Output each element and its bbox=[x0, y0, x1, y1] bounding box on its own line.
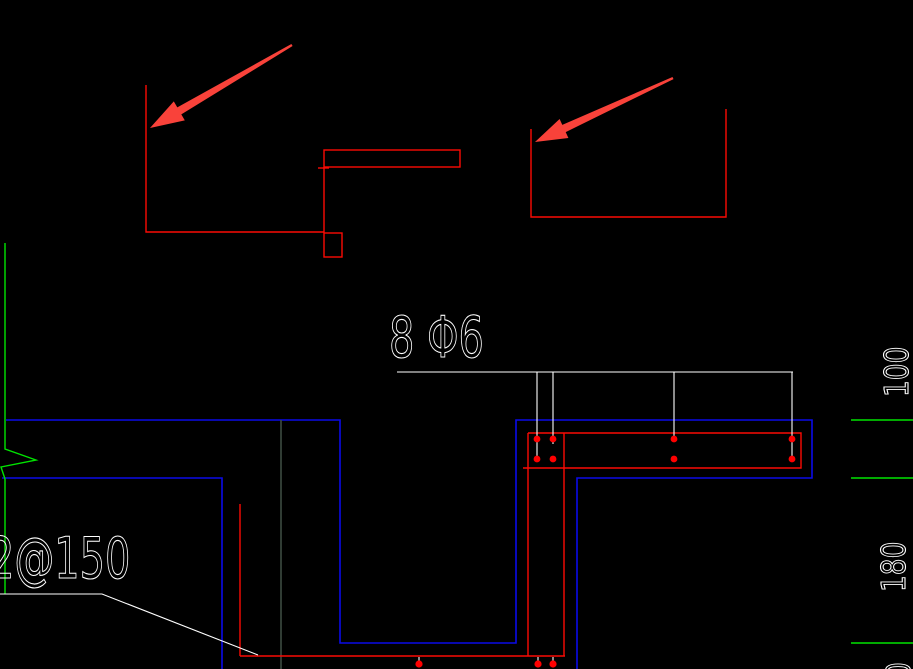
rebar-dot bbox=[534, 436, 541, 443]
cad-drawing-canvas: 8 Φ6 2@150 100 180 0 bbox=[0, 0, 913, 669]
rebar-shape-annotations bbox=[146, 85, 726, 257]
leader-at150 bbox=[0, 594, 258, 655]
rebar-dot-bottom bbox=[549, 660, 556, 667]
rebar-count-label: 8 Φ6 bbox=[389, 310, 484, 367]
rebar-hook-square-outline bbox=[324, 233, 342, 257]
rebar-dot bbox=[671, 456, 678, 463]
rebar-dot bbox=[534, 456, 541, 463]
markup-arrows bbox=[150, 44, 674, 142]
rebar-dot bbox=[671, 436, 678, 443]
dimension-text-partial: 0 bbox=[882, 662, 913, 669]
rebar-dots bbox=[415, 436, 795, 668]
rebar-dot bbox=[789, 456, 796, 463]
arrow-annotation-left bbox=[150, 44, 293, 128]
straight-rebar-bar-outline bbox=[324, 150, 460, 167]
green-reference-lines bbox=[1, 243, 913, 643]
rebar-dot bbox=[550, 436, 557, 443]
leader-lines bbox=[0, 372, 793, 663]
rebar-dot-bottom bbox=[534, 660, 541, 667]
rebar-dot bbox=[550, 456, 557, 463]
reinforcement-lines bbox=[240, 433, 801, 656]
dimension-text-100: 100 bbox=[880, 347, 913, 397]
arrow-annotation-right bbox=[535, 77, 674, 142]
dimension-text-180: 180 bbox=[877, 542, 910, 592]
rebar-dot-bottom bbox=[415, 660, 422, 667]
rebar-dot bbox=[789, 436, 796, 443]
rebar-spacing-label: 2@150 bbox=[0, 531, 130, 588]
